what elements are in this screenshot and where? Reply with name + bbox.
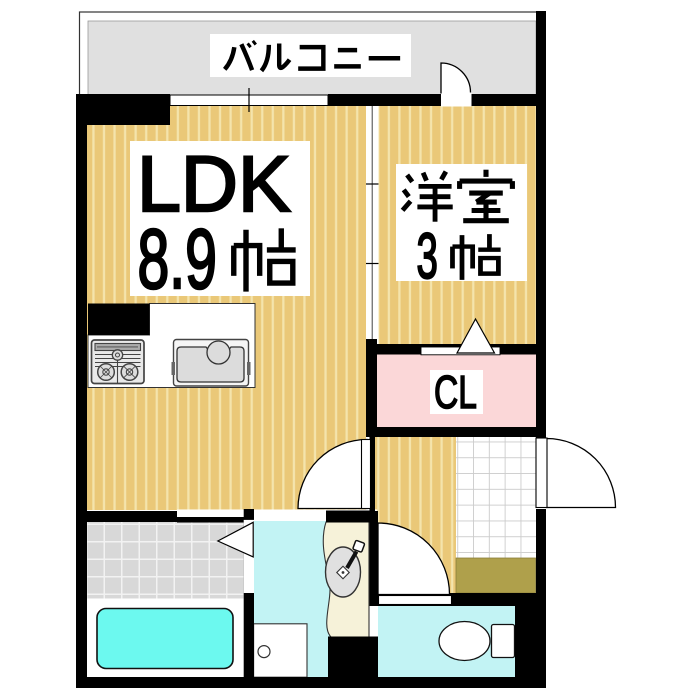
svg-text:3: 3	[417, 221, 438, 293]
svg-text:8.9: 8.9	[138, 213, 217, 307]
svg-text:CL: CL	[434, 367, 477, 418]
